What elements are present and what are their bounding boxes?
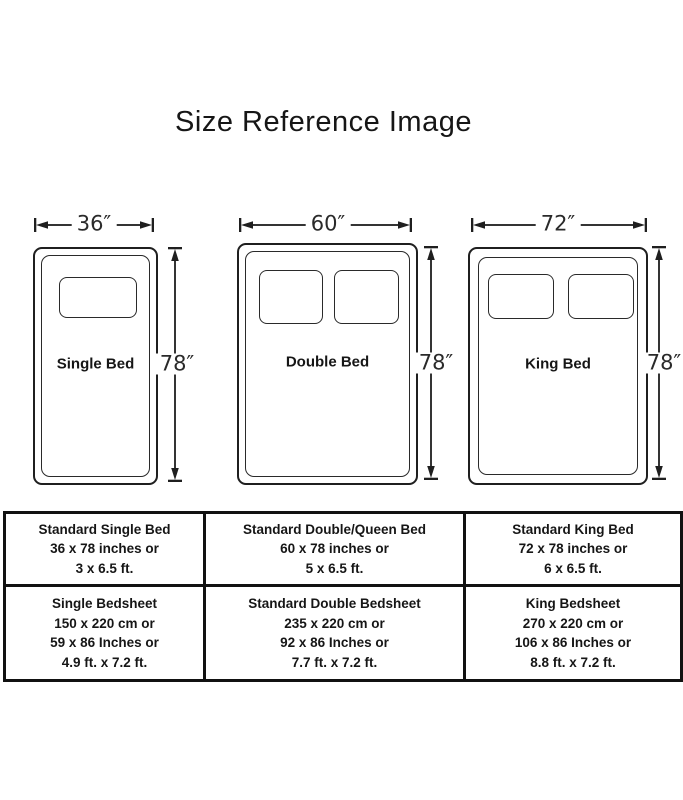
cell-standard-double-queen-bed: Standard Double/Queen Bed 60 x 78 inches… [205, 513, 465, 586]
cell-line: 106 x 86 Inches or [468, 633, 678, 653]
pillow-icon [488, 274, 554, 319]
cell-line: 5 x 6.5 ft. [208, 559, 461, 579]
king-bed-width-label: 72″ [536, 214, 581, 235]
single-bed-height-label: 78″ [155, 354, 200, 375]
double-bed-width-label: 60″ [306, 214, 351, 235]
cell-line: 36 x 78 inches or [8, 539, 201, 559]
cell-line: 4.9 ft. x 7.2 ft. [8, 653, 201, 673]
king-bed-height-label: 78″ [642, 353, 683, 374]
king-bed-outline: King Bed [468, 247, 648, 485]
pillow-icon [568, 274, 634, 319]
cell-line: 6 x 6.5 ft. [468, 559, 678, 579]
single-bed-outline: Single Bed [33, 247, 158, 485]
cell-line: 7.7 ft. x 7.2 ft. [208, 653, 461, 673]
cell-line: 150 x 220 cm or [8, 614, 201, 634]
cell-line: 8.8 ft. x 7.2 ft. [468, 653, 678, 673]
cell-line: King Bedsheet [468, 594, 678, 614]
size-table: Standard Single Bed 36 x 78 inches or 3 … [3, 511, 683, 682]
single-bed-label: Single Bed [57, 355, 135, 372]
cell-single-bedsheet: Single Bedsheet 150 x 220 cm or 59 x 86 … [5, 586, 205, 681]
cell-standard-double-bedsheet: Standard Double Bedsheet 235 x 220 cm or… [205, 586, 465, 681]
cell-standard-king-bed: Standard King Bed 72 x 78 inches or 6 x … [465, 513, 682, 586]
cell-king-bedsheet: King Bedsheet 270 x 220 cm or 106 x 86 I… [465, 586, 682, 681]
pillow-icon [59, 277, 137, 318]
double-bed-height-label: 78″ [414, 353, 459, 374]
cell-line: Standard Double Bedsheet [208, 594, 461, 614]
cell-line: 72 x 78 inches or [468, 539, 678, 559]
king-bed-label: King Bed [525, 355, 591, 372]
double-bed-outline: Double Bed [237, 243, 418, 485]
cell-line: 3 x 6.5 ft. [8, 559, 201, 579]
table-row-bedsheet-sizes: Single Bedsheet 150 x 220 cm or 59 x 86 … [5, 586, 682, 681]
cell-line: 92 x 86 Inches or [208, 633, 461, 653]
cell-line: 270 x 220 cm or [468, 614, 678, 634]
cell-line: 235 x 220 cm or [208, 614, 461, 634]
page-title: Size Reference Image [0, 106, 647, 139]
cell-line: Single Bedsheet [8, 594, 201, 614]
pillow-icon [259, 270, 323, 324]
double-bed-label: Double Bed [286, 353, 369, 370]
cell-standard-single-bed: Standard Single Bed 36 x 78 inches or 3 … [5, 513, 205, 586]
size-reference-diagram: Size Reference Image 36″ Single Bed 78″ … [0, 0, 683, 800]
cell-line: Standard Single Bed [8, 520, 201, 540]
cell-line: 60 x 78 inches or [208, 539, 461, 559]
table-row-bed-sizes: Standard Single Bed 36 x 78 inches or 3 … [5, 513, 682, 586]
pillow-icon [334, 270, 399, 324]
single-bed-width-label: 36″ [72, 214, 117, 235]
cell-line: Standard King Bed [468, 520, 678, 540]
cell-line: 59 x 86 Inches or [8, 633, 201, 653]
cell-line: Standard Double/Queen Bed [208, 520, 461, 540]
